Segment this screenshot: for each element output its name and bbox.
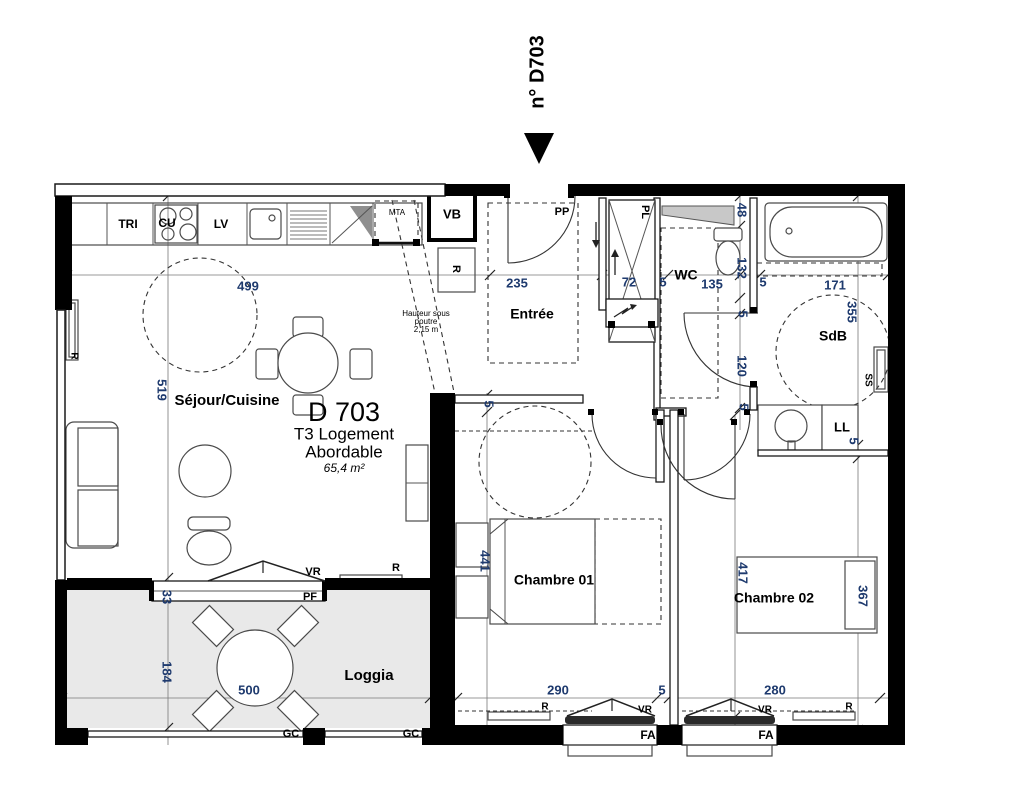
label-r-sejour: R <box>392 562 400 574</box>
kitchen-counter <box>67 189 475 292</box>
chambre2-door <box>678 409 750 480</box>
label-r-ch1: R <box>541 702 549 713</box>
dim-48: 48 <box>735 203 750 217</box>
electrical-panel <box>606 299 658 328</box>
label-ss: SS <box>862 373 873 387</box>
dim-5: 5 <box>847 437 862 444</box>
title-unit-id: D 703 <box>308 397 380 427</box>
dim-5: 5 <box>759 274 766 289</box>
dim-500: 500 <box>238 682 260 697</box>
room-label-loggia: Loggia <box>344 667 394 684</box>
turning-circle-sdb <box>776 295 890 409</box>
wall-segment <box>55 580 67 728</box>
room-label-sdb: SdB <box>819 328 847 344</box>
dim-367: 367 <box>856 585 871 607</box>
label-r-ch2: R <box>845 702 853 713</box>
label-ll: LL <box>834 419 850 434</box>
room-label-sejour: Séjour/Cuisine <box>174 392 279 409</box>
chair <box>256 349 278 379</box>
room-label-wc: WC <box>674 267 697 283</box>
title-line1: T3 Logement <box>294 424 394 443</box>
tv-sideboard <box>406 445 428 521</box>
armchair <box>179 445 231 497</box>
wardrobe-chambre1 <box>595 519 661 624</box>
label-pf: PF <box>303 591 317 603</box>
window-pf <box>149 561 327 601</box>
dim-171: 171 <box>824 277 846 292</box>
label-cu: CU <box>158 216 175 230</box>
chambre1-door <box>588 409 658 478</box>
room-label-chambre1: Chambre 01 <box>514 572 594 588</box>
label-gc-1: GC <box>283 728 300 740</box>
wall-segment <box>57 310 65 580</box>
label-vr-ch1: VR <box>638 705 653 716</box>
wall-segment <box>325 578 430 590</box>
unit-tag-label: n° D703 <box>526 35 548 109</box>
small-chair <box>187 517 231 565</box>
unit-pointer-triangle <box>524 133 554 164</box>
dim-499: 499 <box>237 278 259 293</box>
dim-184: 184 <box>160 661 175 683</box>
room-label-entree: Entrée <box>510 306 554 322</box>
title-line2: Abordable <box>305 442 383 461</box>
label-pl: PL <box>639 205 651 219</box>
wall-segment <box>67 578 152 590</box>
chair <box>350 349 372 379</box>
wc-shelf <box>662 206 734 225</box>
wall-segment <box>445 184 507 196</box>
label-vb: VB <box>443 206 461 221</box>
wall-segment <box>573 184 905 196</box>
corner-cabinet-icon <box>332 206 372 243</box>
dim-5: 5 <box>736 310 751 317</box>
floor-plan: n° D703 <box>0 0 1018 800</box>
wc-door <box>657 419 737 499</box>
dim-5: 5 <box>737 403 752 410</box>
label-gc-2: GC <box>403 728 420 740</box>
dim-280: 280 <box>764 682 786 697</box>
label-fa-ch1: FA <box>640 728 656 742</box>
bathtub <box>765 203 887 261</box>
wall-segment <box>55 728 88 745</box>
dim-417: 417 <box>736 562 751 584</box>
sink-icon <box>250 209 281 239</box>
wall-segment <box>888 196 905 745</box>
room-label-chambre2: Chambre 02 <box>734 590 814 606</box>
label-vr-ch2: VR <box>758 705 773 716</box>
wall-segment <box>55 196 72 310</box>
label-vr-pf: VR <box>305 566 320 578</box>
guardrail-gc <box>88 731 422 737</box>
dim-132: 132 <box>735 257 750 279</box>
label-pp: PP <box>555 206 570 218</box>
wall-segment <box>303 728 325 745</box>
towel-radiator-ss <box>874 347 888 392</box>
dim-120: 120 <box>735 355 750 377</box>
dim-5: 5 <box>659 274 666 289</box>
radiator-chambre2 <box>793 712 855 720</box>
label-r-vb: R <box>450 265 462 273</box>
dim-135: 135 <box>701 276 723 291</box>
label-mta: MTA <box>389 208 406 217</box>
wall-segment <box>55 184 445 196</box>
beam-note-line3: 2,15 m <box>414 325 439 334</box>
dim-235: 235 <box>506 275 528 290</box>
turning-circle-chambre1 <box>479 406 591 518</box>
washbasin <box>758 405 822 451</box>
label-tri: TRI <box>118 217 137 231</box>
dim-5: 5 <box>482 400 497 407</box>
dim-355: 355 <box>845 301 860 323</box>
sofa <box>66 422 118 548</box>
title-area: 65,4 m² <box>324 461 366 475</box>
label-r-left: R <box>68 352 79 360</box>
wall-segment <box>657 725 682 745</box>
entree-zone <box>488 203 578 363</box>
dim-33: 33 <box>160 590 175 604</box>
radiator-chambre1 <box>488 712 550 720</box>
wall-segment <box>430 725 563 745</box>
entrance-door-pp <box>504 184 575 263</box>
label-lv: LV <box>214 217 228 231</box>
dim-290: 290 <box>547 682 569 697</box>
label-fa-ch2: FA <box>758 728 774 742</box>
wall-segment <box>430 393 455 725</box>
dim-72: 72 <box>622 274 636 289</box>
drainer-icon <box>290 211 327 239</box>
nightstand <box>456 576 488 618</box>
sdb-zone <box>757 263 882 276</box>
dim-519: 519 <box>155 379 170 401</box>
dim-441: 441 <box>478 550 493 572</box>
wall-segment <box>777 725 888 745</box>
floor-plan-page: n° D703 <box>0 0 1018 800</box>
dim-5: 5 <box>658 682 665 697</box>
